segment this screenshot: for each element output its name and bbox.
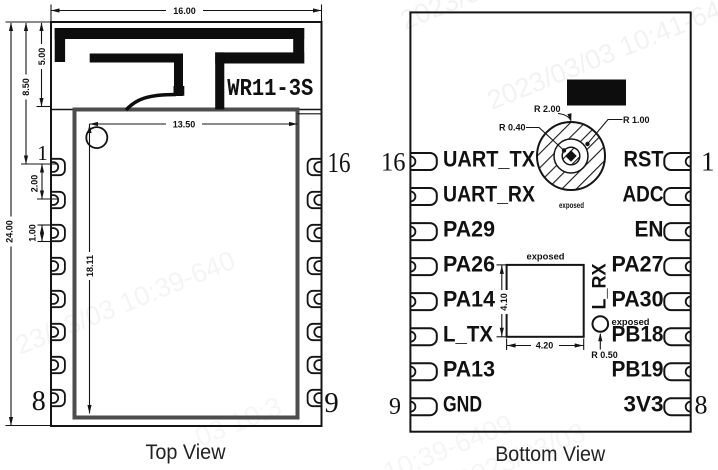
svg-text:PA26: PA26 (443, 252, 495, 277)
svg-text:R 2.00: R 2.00 (534, 104, 561, 114)
svg-text:R 1.00: R 1.00 (623, 115, 650, 125)
svg-text:4.10: 4.10 (499, 293, 509, 311)
svg-text:16.00: 16.00 (173, 6, 196, 16)
svg-text:exposed: exposed (559, 200, 584, 210)
svg-text:8: 8 (695, 391, 708, 420)
svg-text:UART_RX: UART_RX (443, 182, 535, 207)
svg-text:PA27: PA27 (612, 252, 664, 277)
svg-text:UART_TX: UART_TX (443, 147, 535, 172)
svg-text:9: 9 (389, 394, 401, 420)
svg-text:13.50: 13.50 (173, 120, 196, 130)
svg-text:8.50: 8.50 (21, 78, 31, 96)
svg-text:PA14: PA14 (443, 287, 496, 312)
svg-text:5.00: 5.00 (37, 48, 47, 66)
svg-text:4.20: 4.20 (536, 341, 554, 351)
svg-text:2.00: 2.00 (30, 175, 40, 193)
svg-text:PB19: PB19 (612, 357, 664, 382)
svg-text:PA29: PA29 (443, 217, 495, 242)
svg-text:16: 16 (328, 148, 351, 179)
svg-text:16: 16 (381, 147, 406, 176)
svg-text:GND: GND (443, 392, 482, 417)
svg-text:18.11: 18.11 (85, 255, 95, 277)
svg-text:exposed: exposed (527, 252, 565, 262)
svg-text:1.00: 1.00 (28, 224, 38, 242)
svg-text:24.00: 24.00 (4, 220, 14, 243)
svg-text:RST: RST (624, 147, 665, 172)
svg-text:L_TX: L_TX (443, 322, 493, 347)
svg-text:ADC: ADC (623, 182, 664, 207)
svg-text:3V3: 3V3 (624, 392, 664, 417)
svg-text:1: 1 (37, 141, 48, 165)
svg-text:Top View: Top View (146, 441, 227, 464)
svg-text:L_RX: L_RX (590, 263, 611, 309)
svg-text:EN: EN (635, 217, 664, 242)
svg-text:R 0.40: R 0.40 (499, 123, 526, 133)
svg-text:WR11-3S: WR11-3S (227, 76, 313, 103)
svg-text:exposed: exposed (612, 317, 650, 328)
svg-text:PA13: PA13 (443, 357, 495, 382)
svg-text:8: 8 (32, 386, 46, 417)
svg-text:R 0.50: R 0.50 (591, 350, 618, 360)
svg-text:Bottom View: Bottom View (495, 443, 606, 466)
svg-text:PA30: PA30 (612, 287, 664, 312)
svg-text:1: 1 (701, 147, 715, 177)
svg-text:9: 9 (324, 387, 339, 419)
svg-text:23/03/03 10:39-640: 23/03/03 10:39-640 (11, 245, 239, 361)
